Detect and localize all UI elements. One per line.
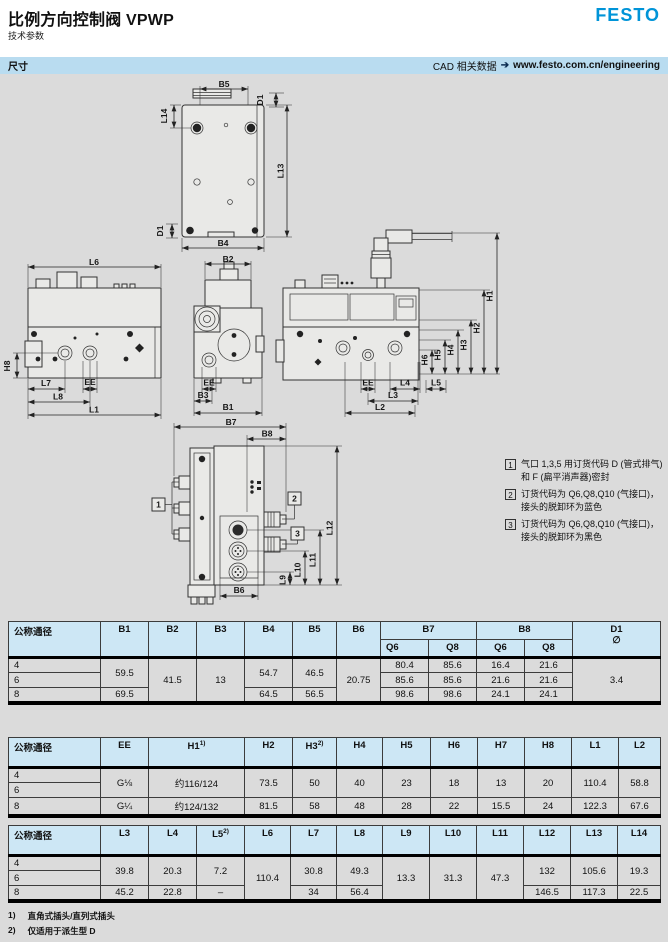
table-row: 4G⅛约116/12473.5504023181320110.458.8 xyxy=(9,768,661,783)
footnote-1-text: 直角式插头/直列式插头 xyxy=(28,910,115,922)
table-cell: 69.5 xyxy=(101,688,149,704)
table-cell: 110.4 xyxy=(245,856,291,902)
table-cell: 47.3 xyxy=(477,856,524,902)
top-view-drawing: B5 L14 D1 L13 D1 B4 xyxy=(155,79,292,252)
table-cell: 8 xyxy=(9,688,101,704)
dim-label-l13: L13 xyxy=(276,163,286,178)
dim-label-l1: L1 xyxy=(89,405,99,415)
table-cell: 21.6 xyxy=(477,673,525,688)
table-cell: 122.3 xyxy=(572,798,619,817)
column-header: 公称通径 xyxy=(9,738,101,768)
column-header: EE xyxy=(101,738,149,768)
table-cell: 24 xyxy=(525,798,572,817)
right-side-view-drawing: H1 H2 H3 H4 H5 H6 EE xyxy=(276,230,500,417)
dim-label-b5: B5 xyxy=(219,79,230,89)
table-cell: – xyxy=(197,886,245,902)
dim-label-h8: H8 xyxy=(2,360,12,371)
dim-label-l9: L9 xyxy=(278,575,288,585)
table-cell: 64.5 xyxy=(245,688,293,704)
column-header: D1∅ xyxy=(573,622,661,658)
table-cell: 22.5 xyxy=(618,886,661,902)
note-2-text: 订货代码为 Q6,Q8,Q10 (气接口)，接头的脱卸环为蓝色 xyxy=(521,488,663,514)
table-cell: G¼ xyxy=(101,798,149,817)
footnotes: 1) 直角式插头/直列式插头 2) 仅适用于派生型 D xyxy=(8,910,115,940)
column-header: 公称通径 xyxy=(9,826,101,856)
column-header: L13 xyxy=(571,826,618,856)
table-row: 845.222.8–3456.4146.5117.322.5 xyxy=(9,886,661,902)
dim-label-b1: B1 xyxy=(223,402,234,412)
table-cell: 23 xyxy=(383,768,431,798)
table-cell: 56.5 xyxy=(293,688,337,704)
column-header: Q6 xyxy=(477,640,525,658)
footnote-1: 1) 直角式插头/直列式插头 xyxy=(8,910,115,922)
callout-1-number: 1 xyxy=(156,500,161,510)
note-3-text: 订货代码为 Q6,Q8,Q10 (气接口)，接头的脱卸环为黑色 xyxy=(521,518,663,544)
dim-label-h2: H2 xyxy=(472,322,482,333)
column-header: Q6 xyxy=(381,640,429,658)
table-cell: 7.2 xyxy=(197,856,245,886)
dim-label-l4: L4 xyxy=(400,378,410,388)
table-cell: 85.6 xyxy=(381,673,429,688)
dim-label-l14: L14 xyxy=(159,108,169,123)
table-cell: 13.3 xyxy=(383,856,430,902)
column-header: L2 xyxy=(619,738,661,768)
table-cell: 18 xyxy=(431,768,478,798)
column-header: L11 xyxy=(477,826,524,856)
column-header: B7 xyxy=(381,622,477,640)
section-bar: 尺寸 CAD 相关数据 ➔ www.festo.com.cn/engineeri… xyxy=(0,57,668,74)
table-cell: 22.8 xyxy=(149,886,197,902)
column-header: L12 xyxy=(524,826,571,856)
table-cell: 约116/124 xyxy=(149,768,245,798)
cad-data-link: CAD 相关数据 ➔ www.festo.com.cn/engineering xyxy=(433,58,660,73)
table-cell: 39.8 xyxy=(101,856,149,886)
dim-label-d1-bottom: D1 xyxy=(155,225,165,236)
column-header: L4 xyxy=(149,826,197,856)
table-cell: 13 xyxy=(478,768,525,798)
column-header: Q8 xyxy=(525,640,573,658)
table-cell: 4 xyxy=(9,658,101,673)
column-header: 公称通径 xyxy=(9,622,101,658)
dimensions-table-h: 公称通径EEH11)H2H32)H4H5H6H7H8L1L24G⅛约116/12… xyxy=(8,737,661,818)
table-cell: 30.8 xyxy=(291,856,337,886)
dim-label-b2: B2 xyxy=(223,254,234,264)
note-1-text: 气口 1,3,5 用订货代码 D (管式排气)和 F (扁平消声器)密封 xyxy=(521,458,663,484)
column-header: B5 xyxy=(293,622,337,658)
table-cell: 73.5 xyxy=(245,768,293,798)
cad-url[interactable]: www.festo.com.cn/engineering xyxy=(513,60,660,71)
table-cell: 80.4 xyxy=(381,658,429,673)
table-cell: 67.6 xyxy=(619,798,661,817)
column-header: H6 xyxy=(431,738,478,768)
table-cell: 110.4 xyxy=(572,768,619,798)
dim-label-h1: H1 xyxy=(485,290,495,301)
dim-label-b3: B3 xyxy=(198,390,209,400)
column-header: H5 xyxy=(383,738,431,768)
footnote-2-number: 2) xyxy=(8,925,16,937)
dim-label-l6: L6 xyxy=(89,257,99,267)
table-cell: 56.4 xyxy=(337,886,383,902)
table-cell: 81.5 xyxy=(245,798,293,817)
table-cell: 45.2 xyxy=(101,886,149,902)
table-cell: 20.3 xyxy=(149,856,197,886)
table-cell: 58 xyxy=(293,798,337,817)
table-cell: 6 xyxy=(9,871,101,886)
table-cell: 117.3 xyxy=(571,886,618,902)
column-header: L14 xyxy=(618,826,661,856)
front-view-drawing: B2 EE B3 B1 xyxy=(194,254,264,416)
table-row: 439.820.37.2110.430.849.313.331.347.3132… xyxy=(9,856,661,871)
column-header: L52) xyxy=(197,826,245,856)
table-row: 459.541.51354.746.520.7580.485.616.421.6… xyxy=(9,658,661,673)
column-header: H4 xyxy=(337,738,383,768)
table-cell: 59.5 xyxy=(101,658,149,688)
table-cell: 34 xyxy=(291,886,337,902)
table-cell: 15.5 xyxy=(478,798,525,817)
table-cell: 21.6 xyxy=(525,658,573,673)
note-1: 1 气口 1,3,5 用订货代码 D (管式排气)和 F (扁平消声器)密封 xyxy=(505,458,663,484)
dim-label-l10: L10 xyxy=(293,562,303,577)
table-cell: 132 xyxy=(524,856,571,886)
column-header: L8 xyxy=(337,826,383,856)
column-header: B2 xyxy=(149,622,197,658)
column-header: H11) xyxy=(149,738,245,768)
table-row: 8G¼约124/13281.55848282215.524122.367.6 xyxy=(9,798,661,817)
column-header: Q8 xyxy=(429,640,477,658)
dim-label-b8: B8 xyxy=(262,429,273,439)
dim-label-l7: L7 xyxy=(41,378,51,388)
table-cell: 31.3 xyxy=(430,856,477,902)
table-cell: 58.8 xyxy=(619,768,661,798)
dim-label-b4: B4 xyxy=(218,238,229,248)
column-header: B4 xyxy=(245,622,293,658)
dim-label-l12: L12 xyxy=(325,520,335,535)
dim-label-d1-top: D1 xyxy=(255,94,265,105)
table-cell: 28 xyxy=(383,798,431,817)
table-cell: 约124/132 xyxy=(149,798,245,817)
dim-label-l11: L11 xyxy=(308,553,318,567)
table-cell: 46.5 xyxy=(293,658,337,688)
datasheet-page: 比例方向控制阀 VPWP 技术参数 FESTO 尺寸 CAD 相关数据 ➔ ww… xyxy=(0,0,668,942)
section-title: 尺寸 xyxy=(8,58,28,73)
table-cell: 20 xyxy=(525,768,572,798)
cad-label: CAD 相关数据 xyxy=(433,58,497,73)
dim-label-l8: L8 xyxy=(53,392,63,402)
table-cell: G⅛ xyxy=(101,768,149,798)
arrow-right-icon: ➔ xyxy=(501,60,509,71)
table-cell: 85.6 xyxy=(429,673,477,688)
column-header: L1 xyxy=(572,738,619,768)
dim-label-h5: H5 xyxy=(433,349,443,360)
note-3-number: 3 xyxy=(505,519,516,530)
footnote-1-number: 1) xyxy=(8,910,16,922)
table-cell: 22 xyxy=(431,798,478,817)
table-cell: 4 xyxy=(9,768,101,783)
column-header: L3 xyxy=(101,826,149,856)
column-header: L9 xyxy=(383,826,430,856)
dim-label-ee-front: EE xyxy=(203,378,215,388)
column-header: B3 xyxy=(197,622,245,658)
table-cell: 16.4 xyxy=(477,658,525,673)
column-header: L6 xyxy=(245,826,291,856)
table-cell: 8 xyxy=(9,886,101,902)
notes-list: 1 气口 1,3,5 用订货代码 D (管式排气)和 F (扁平消声器)密封 2… xyxy=(505,458,663,548)
note-1-number: 1 xyxy=(505,459,516,470)
dim-label-h4: H4 xyxy=(446,344,456,355)
column-header: H2 xyxy=(245,738,293,768)
table-cell: 98.6 xyxy=(381,688,429,704)
column-header: L7 xyxy=(291,826,337,856)
bottom-view-drawing: B7 B8 L12 L11 L10 L9 B6 1 xyxy=(152,417,342,604)
dim-label-b6: B6 xyxy=(234,585,245,595)
table-cell: 98.6 xyxy=(429,688,477,704)
table-cell: 146.5 xyxy=(524,886,571,902)
page-subtitle: 技术参数 xyxy=(8,29,44,42)
note-2-number: 2 xyxy=(505,489,516,500)
table-cell: 85.6 xyxy=(429,658,477,673)
table-row: 869.564.556.598.698.624.124.1 xyxy=(9,688,661,704)
note-3: 3 订货代码为 Q6,Q8,Q10 (气接口)，接头的脱卸环为黑色 xyxy=(505,518,663,544)
table-cell: 13 xyxy=(197,658,245,704)
table-cell: 105.6 xyxy=(571,856,618,886)
dim-label-l5: L5 xyxy=(431,378,441,388)
table-cell: 20.75 xyxy=(337,658,381,704)
left-side-view-drawing: L6 H8 L7 EE L8 L1 xyxy=(2,257,161,419)
dim-label-h6: H6 xyxy=(420,354,430,365)
table-cell: 21.6 xyxy=(525,673,573,688)
dim-label-h3: H3 xyxy=(459,339,469,350)
dim-label-l2: L2 xyxy=(375,402,385,412)
table-cell: 4 xyxy=(9,856,101,871)
table-cell: 8 xyxy=(9,798,101,817)
table-cell: 24.1 xyxy=(477,688,525,704)
table-cell: 6 xyxy=(9,783,101,798)
festo-logo: FESTO xyxy=(595,5,660,26)
table-cell: 49.3 xyxy=(337,856,383,886)
dim-label-b7: B7 xyxy=(226,417,237,427)
dim-label-l3: L3 xyxy=(388,390,398,400)
table-cell: 50 xyxy=(293,768,337,798)
column-header: H8 xyxy=(525,738,572,768)
note-2: 2 订货代码为 Q6,Q8,Q10 (气接口)，接头的脱卸环为蓝色 xyxy=(505,488,663,514)
column-header: H32) xyxy=(293,738,337,768)
table-cell: 19.3 xyxy=(618,856,661,886)
dimensions-section: B5 L14 D1 L13 D1 B4 xyxy=(0,74,668,942)
column-header: B8 xyxy=(477,622,573,640)
footnote-2-text: 仅适用于派生型 D xyxy=(28,925,96,937)
column-header: B6 xyxy=(337,622,381,658)
dimensions-table-b: 公称通径B1B2B3B4B5B6B7B8D1∅Q6Q8Q6Q8459.541.5… xyxy=(8,621,661,705)
table-cell: 40 xyxy=(337,768,383,798)
callout-2-number: 2 xyxy=(292,494,297,504)
table-cell: 24.1 xyxy=(525,688,573,704)
dimensions-table-l: 公称通径L3L4L52)L6L7L8L9L10L11L12L13L14439.8… xyxy=(8,825,661,903)
page-title: 比例方向控制阀 VPWP xyxy=(8,6,174,30)
column-header: B1 xyxy=(101,622,149,658)
column-header: L10 xyxy=(430,826,477,856)
table-cell: 6 xyxy=(9,673,101,688)
dim-label-ee-right: EE xyxy=(362,378,374,388)
footnote-2: 2) 仅适用于派生型 D xyxy=(8,925,115,937)
table-cell: 48 xyxy=(337,798,383,817)
table-cell: 3.4 xyxy=(573,658,661,704)
callout-3-number: 3 xyxy=(295,529,300,539)
column-header: H7 xyxy=(478,738,525,768)
table-cell: 54.7 xyxy=(245,658,293,688)
table-cell: 41.5 xyxy=(149,658,197,704)
